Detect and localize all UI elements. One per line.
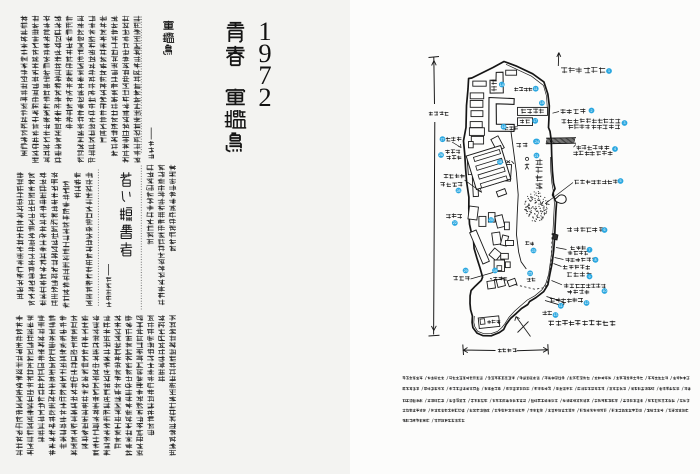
svg-text:12: 12 bbox=[585, 301, 589, 305]
svg-text:27: 27 bbox=[441, 137, 445, 141]
svg-text:6: 6 bbox=[604, 228, 606, 232]
svg-text:25: 25 bbox=[528, 272, 532, 276]
svg-text:22: 22 bbox=[453, 221, 457, 225]
svg-text:3: 3 bbox=[624, 121, 626, 125]
svg-text:24: 24 bbox=[535, 140, 539, 144]
svg-text:23: 23 bbox=[532, 249, 536, 253]
svg-text:1: 1 bbox=[608, 69, 610, 73]
svg-text:15: 15 bbox=[540, 101, 544, 105]
svg-text:5: 5 bbox=[620, 179, 622, 183]
svg-text:11: 11 bbox=[534, 87, 538, 91]
svg-text:10: 10 bbox=[603, 289, 607, 293]
svg-text:20: 20 bbox=[489, 218, 493, 222]
svg-text:21: 21 bbox=[535, 154, 539, 158]
svg-text:19: 19 bbox=[493, 269, 497, 273]
svg-text:16: 16 bbox=[502, 125, 506, 129]
svg-text:8: 8 bbox=[595, 258, 597, 262]
svg-text:11: 11 bbox=[559, 304, 563, 308]
svg-text:26: 26 bbox=[439, 153, 443, 157]
svg-text:17: 17 bbox=[533, 119, 537, 123]
svg-text:7: 7 bbox=[589, 248, 591, 252]
svg-text:4: 4 bbox=[614, 147, 616, 151]
svg-text:28: 28 bbox=[457, 189, 461, 193]
svg-text:18: 18 bbox=[498, 160, 502, 164]
svg-text:13: 13 bbox=[554, 313, 558, 317]
svg-text:29: 29 bbox=[464, 269, 468, 273]
svg-text:2: 2 bbox=[591, 109, 593, 113]
svg-text:14: 14 bbox=[500, 83, 504, 87]
svg-text:9: 9 bbox=[589, 275, 591, 279]
